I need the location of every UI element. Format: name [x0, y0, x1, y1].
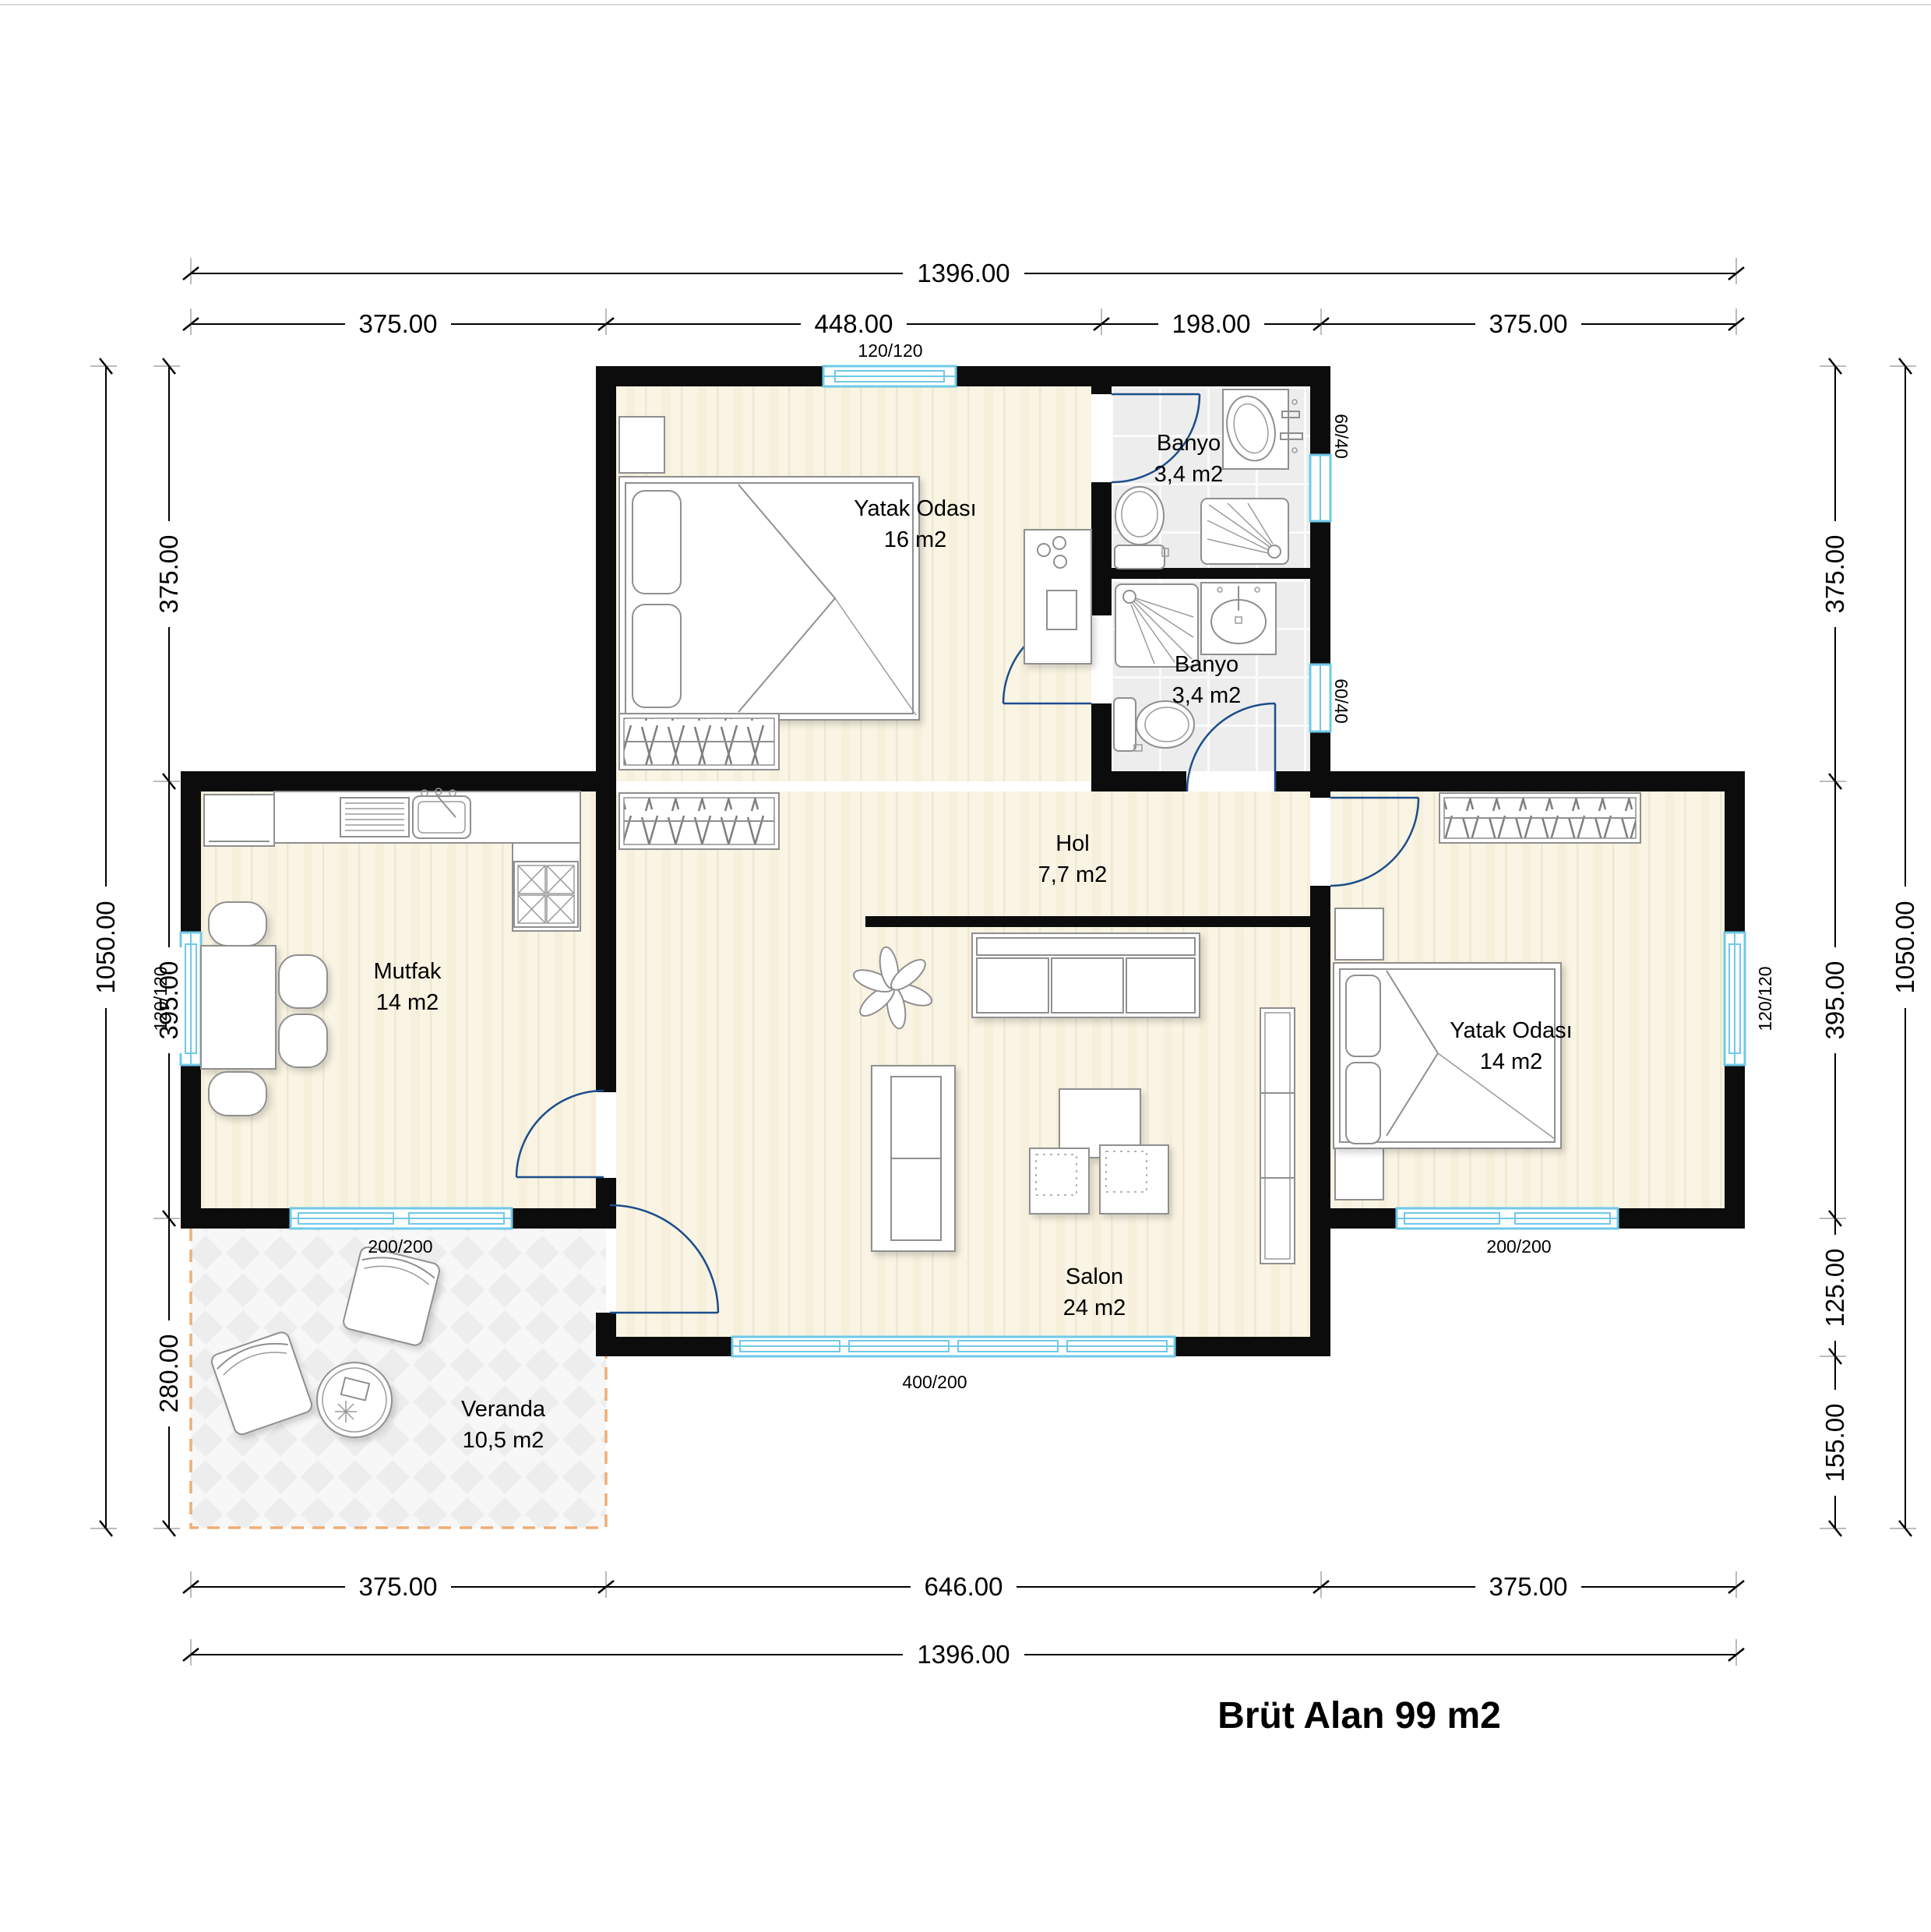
nightstand-bedroom-2-top: [1335, 908, 1383, 960]
dim-right-seg-3: 125.00: [1820, 1249, 1849, 1327]
dim-bottom-seg-2: 646.00: [925, 1572, 1003, 1601]
fridge-kitchen: [204, 795, 274, 846]
dim-right-total: 1050.00: [1890, 901, 1919, 993]
label-bath-2-name: Banyo: [1175, 652, 1239, 677]
round-table-veranda: [317, 1363, 392, 1437]
label-bedroom-2-name: Yatak Odası: [1450, 1018, 1572, 1043]
dim-left-total: 1050.00: [91, 901, 120, 993]
dim-bottom-seg-3: 375.00: [1489, 1572, 1568, 1601]
label-veranda-name: Veranda: [461, 1397, 546, 1422]
window-bedroom-2-right: [1725, 933, 1745, 1065]
sink-bath-2: [1201, 583, 1276, 654]
tag-window-bedroom-2-bottom: 200/200: [1486, 1236, 1551, 1257]
label-bath-2-area: 3,4 m2: [1172, 683, 1242, 708]
dim-left-seg-1: 375.00: [154, 535, 183, 614]
wardrobe-bedroom-1: [619, 714, 779, 770]
tag-window-bath-1: 60/40: [1331, 414, 1351, 459]
label-bedroom-2-area: 14 m2: [1480, 1049, 1543, 1074]
dim-top-seg-4: 375.00: [1489, 309, 1568, 338]
gross-area-label: Brüt Alan 99 m2: [1217, 1695, 1501, 1736]
wardrobe-bedroom-2: [1439, 793, 1640, 843]
window-salon-bottom: [732, 1337, 1175, 1356]
shower-bath-1: [1201, 499, 1288, 564]
tag-window-top: 120/120: [858, 340, 922, 361]
window-bath-2: [1310, 665, 1330, 732]
dim-top-seg-2: 448.00: [815, 309, 893, 338]
tag-window-bath-2: 60/40: [1331, 679, 1351, 724]
dim-top-seg-1: 375.00: [359, 309, 438, 338]
label-kitchen-area: 14 m2: [376, 990, 439, 1015]
window-top-bedroom-1: [823, 366, 956, 386]
sofa-salon: [972, 933, 1200, 1017]
dim-right-seg-1: 375.00: [1820, 535, 1849, 614]
dim-top-seg-3: 198.00: [1172, 309, 1251, 338]
label-hall-name: Hol: [1055, 831, 1090, 856]
nightstand-bedroom-1: [619, 417, 664, 473]
window-bedroom-2-bottom: [1397, 1208, 1618, 1229]
tag-window-bedroom-2-right: 120/120: [1755, 966, 1775, 1031]
label-salon-area: 24 m2: [1063, 1296, 1126, 1320]
dim-bottom-seg-1: 375.00: [359, 1572, 438, 1601]
nightstand-bedroom-2-bottom: [1335, 1148, 1383, 1200]
label-bath-1-name: Banyo: [1157, 431, 1221, 456]
tag-window-kitchen-left: 120/120: [150, 966, 171, 1031]
window-kitchen-bottom: [291, 1208, 512, 1229]
label-bedroom-1-area: 16 m2: [884, 527, 947, 552]
window-top-border: [0, 4, 1931, 5]
label-bath-1-area: 3,4 m2: [1154, 462, 1224, 487]
label-salon-name: Salon: [1066, 1264, 1123, 1289]
dresser-bedroom-1: [1024, 530, 1091, 664]
dim-bottom-total: 1396.00: [917, 1640, 1010, 1669]
floor-hall-salon: [616, 791, 1310, 1337]
cabinet-salon: [1260, 1008, 1295, 1264]
label-kitchen-name: Mutfak: [373, 959, 442, 984]
dim-right-seg-4: 155.00: [1820, 1404, 1849, 1482]
dim-right-seg-2: 395.00: [1820, 961, 1849, 1040]
label-veranda-area: 10,5 m2: [463, 1428, 544, 1453]
label-hall-area: 7,7 m2: [1038, 862, 1108, 887]
window-bath-1: [1310, 455, 1330, 521]
floor-plan-canvas: 1396.00 375.00 448.00 198.00 375.00 375.…: [0, 0, 1931, 1932]
label-bedroom-1-name: Yatak Odası: [854, 496, 976, 521]
tv-unit-salon: [872, 1066, 955, 1251]
dim-top-total: 1396.00: [917, 259, 1010, 287]
dim-left-seg-3: 280.00: [154, 1334, 183, 1413]
tag-window-salon-bottom: 400/200: [902, 1372, 967, 1392]
tag-window-kitchen-bottom: 200/200: [368, 1236, 432, 1257]
wardrobe-hall: [619, 793, 779, 849]
stove-kitchen: [514, 862, 578, 927]
